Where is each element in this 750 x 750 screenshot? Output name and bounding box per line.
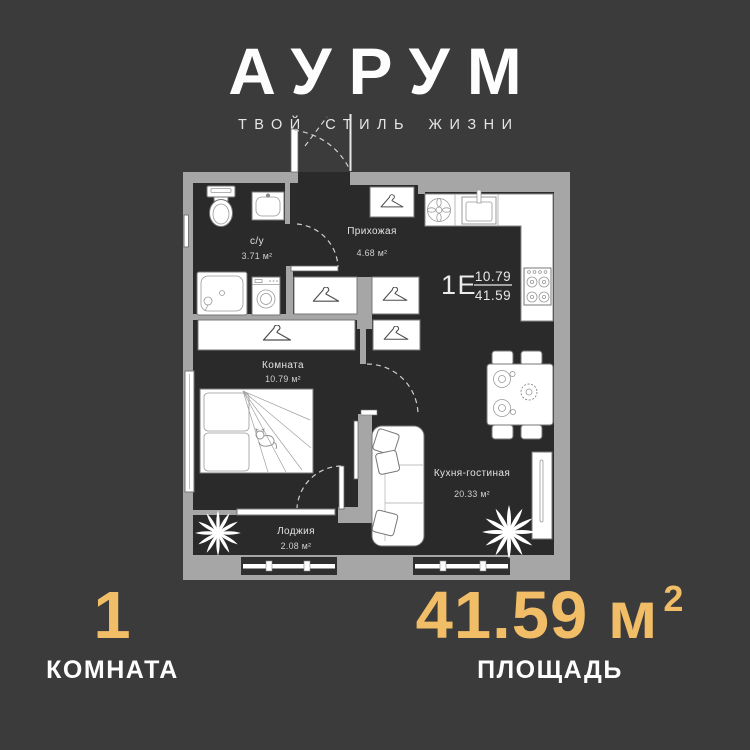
- tv-icon: [532, 452, 552, 539]
- apartment-poster: АУРУМ ТВОЙ СТИЛЬ ЖИЗНИ: [0, 0, 750, 750]
- unit-total-area: 41.59: [475, 288, 511, 303]
- brand-logo: АУРУМ: [0, 38, 750, 104]
- towel-rail-icon: [184, 215, 189, 247]
- sofa-icon: [372, 426, 424, 546]
- chair-icon: [521, 351, 542, 365]
- entrance-opening: [298, 172, 350, 183]
- bathroom-area: 3.71 м²: [242, 251, 273, 261]
- chair-icon: [492, 351, 513, 365]
- bathroom-sink-icon: [252, 192, 284, 220]
- unit-label: 1Е: [441, 270, 477, 300]
- closet-entry: [370, 187, 414, 217]
- chair-icon: [492, 425, 513, 439]
- bedroom-label: Комната: [262, 360, 304, 371]
- entrance-door-leaf: [291, 129, 298, 172]
- loggia-window: [237, 509, 335, 515]
- door-jamb: [361, 410, 377, 415]
- rooms-count: 1: [35, 581, 190, 651]
- shower-icon: [197, 272, 247, 315]
- area-label: ПЛОЩАДЬ: [395, 656, 705, 685]
- bedroom-door-leaf: [354, 421, 358, 479]
- toilet-icon: [207, 186, 235, 227]
- bathroom-door-leaf: [291, 266, 338, 271]
- loggia-door-leaf: [339, 466, 344, 509]
- chair-icon: [521, 425, 542, 439]
- area-value: 41.59 м2: [395, 581, 705, 651]
- area-stat: 41.59 м2 ПЛОЩАДЬ: [395, 581, 705, 685]
- bedroom-area: 10.79 м²: [265, 374, 301, 384]
- stove-icon: [524, 268, 551, 305]
- hallway-label: Прихожая: [347, 226, 397, 237]
- bathroom-label: с/у: [250, 236, 264, 247]
- loggia-area: 2.08 м²: [281, 541, 312, 551]
- hallway-area: 4.68 м²: [357, 248, 388, 258]
- closet-corridor: [373, 320, 420, 350]
- bed-icon: [200, 389, 313, 473]
- washing-machine-icon: [252, 277, 280, 315]
- rooms-label: КОМНАТА: [35, 656, 190, 685]
- unit-living-area: 10.79: [475, 269, 511, 284]
- loggia-label: Лоджия: [277, 526, 315, 537]
- wardrobe-bedroom: [198, 320, 355, 350]
- rooms-stat: 1 КОМНАТА: [35, 581, 190, 685]
- kitchen-area: 20.33 м²: [454, 489, 490, 499]
- floorplan: с/у 3.71 м² Прихожая 4.68 м² Комната 10.…: [180, 108, 570, 582]
- kitchen-label: Кухня-гостиная: [434, 468, 510, 479]
- area-superscript: 2: [663, 578, 684, 619]
- closet-hall-left: [294, 277, 357, 314]
- closet-hall-right: [372, 277, 419, 314]
- entrance-door-arc: [294, 130, 349, 168]
